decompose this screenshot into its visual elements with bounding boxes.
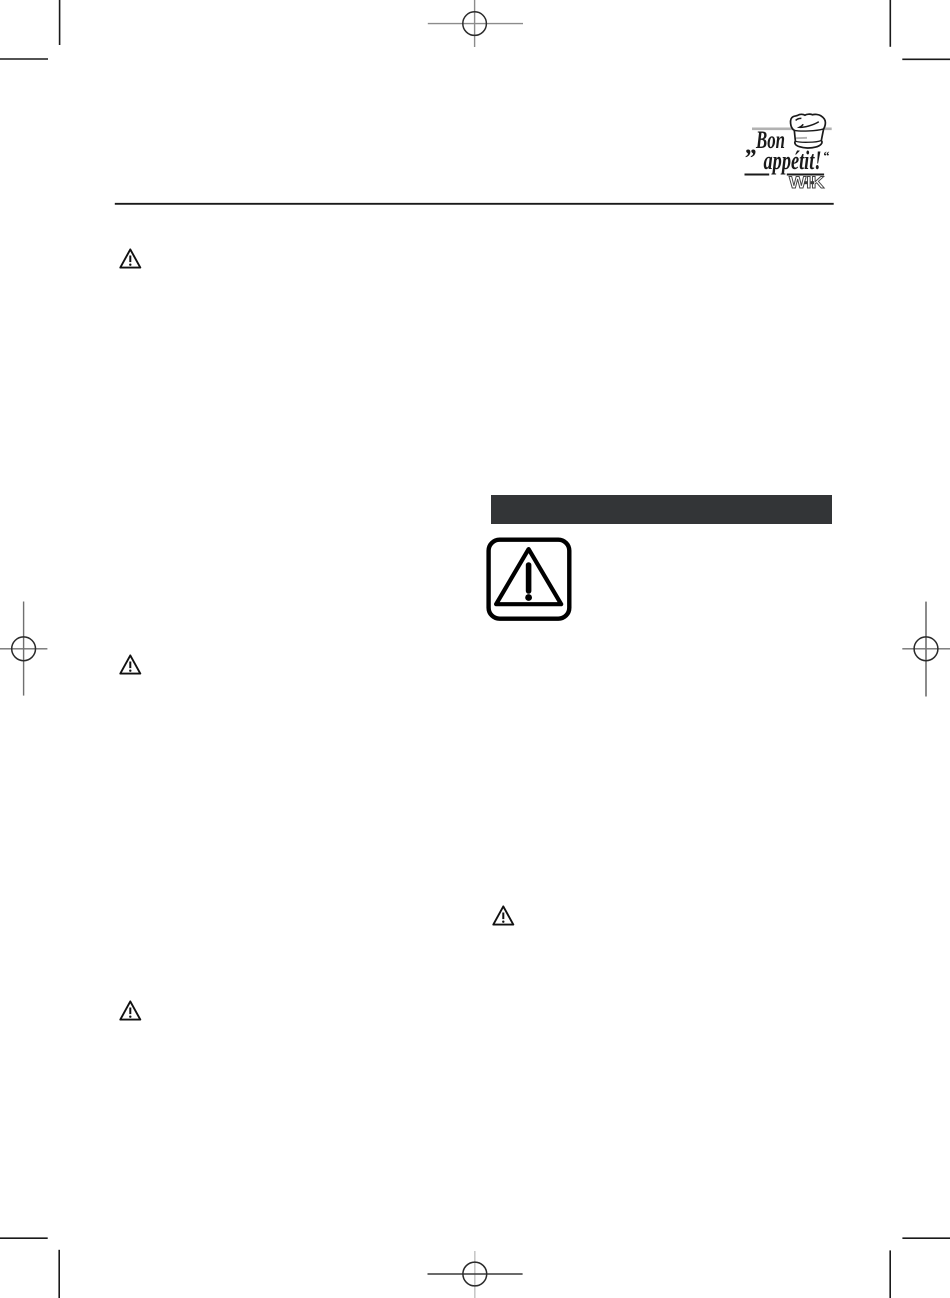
svg-text:appétit!: appétit! [764, 146, 822, 175]
svg-text:“: “ [823, 148, 830, 163]
